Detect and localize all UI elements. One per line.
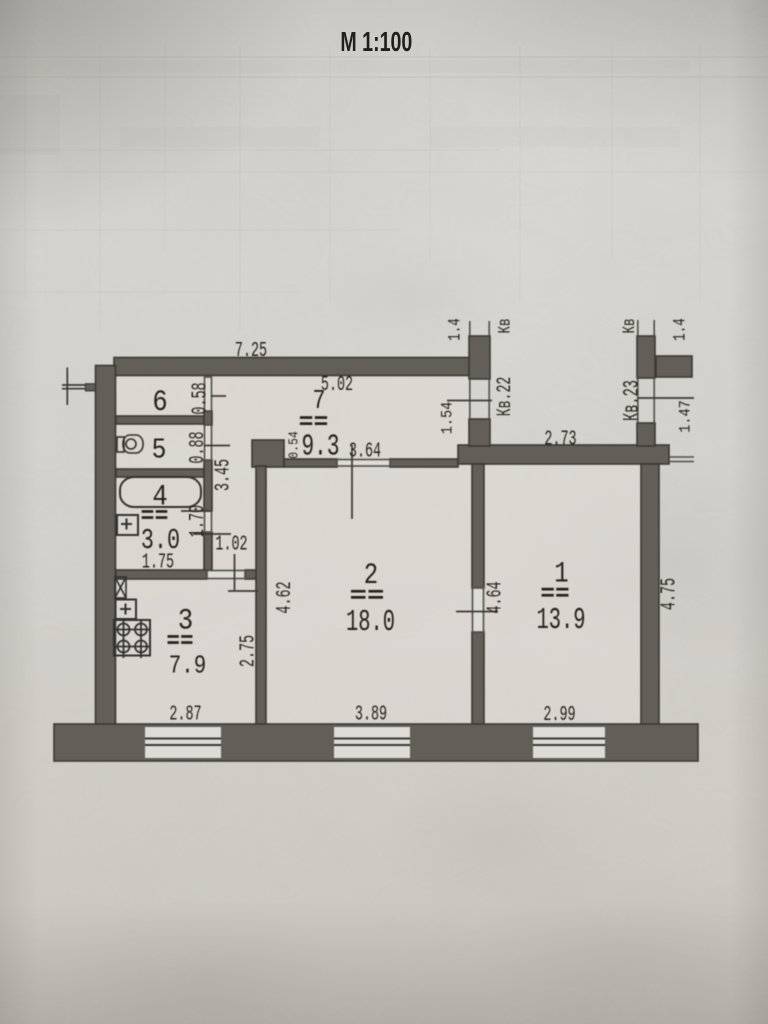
svg-text:6: 6 <box>152 386 167 419</box>
svg-text:5: 5 <box>152 435 167 467</box>
svg-text:Кв.22: Кв.22 <box>495 377 517 417</box>
svg-text:0.54: 0.54 <box>287 431 302 459</box>
svg-text:1.75: 1.75 <box>142 551 174 575</box>
svg-text:7.25: 7.25 <box>235 339 267 363</box>
svg-text:2: 2 <box>364 559 378 593</box>
svg-text:1.70: 1.70 <box>186 505 210 537</box>
svg-text:2.73: 2.73 <box>544 428 576 452</box>
svg-text:4.75: 4.75 <box>658 578 682 610</box>
svg-text:4.64: 4.64 <box>484 581 508 613</box>
svg-text:Кв.23: Кв.23 <box>621 380 645 421</box>
svg-text:3.45: 3.45 <box>212 459 236 491</box>
svg-text:1.4: 1.4 <box>444 318 465 341</box>
svg-text:Кв: Кв <box>619 318 640 333</box>
svg-text:4: 4 <box>152 481 167 514</box>
svg-text:9.3: 9.3 <box>302 429 340 464</box>
svg-text:0.58: 0.58 <box>189 382 213 414</box>
svg-text:7: 7 <box>313 387 326 417</box>
svg-text:2.87: 2.87 <box>169 703 201 727</box>
svg-text:3.0: 3.0 <box>141 524 180 557</box>
svg-text:1.4: 1.4 <box>669 318 690 341</box>
svg-text:13.9: 13.9 <box>536 602 585 637</box>
svg-text:7.9: 7.9 <box>169 652 206 682</box>
svg-text:1.54: 1.54 <box>440 402 457 435</box>
svg-text:Кв: Кв <box>494 318 515 333</box>
svg-text:2.75: 2.75 <box>237 635 261 667</box>
svg-text:1: 1 <box>554 557 568 591</box>
svg-text:5.02: 5.02 <box>321 373 353 397</box>
svg-text:3: 3 <box>178 605 193 638</box>
svg-text:1.47: 1.47 <box>678 400 695 433</box>
svg-text:18.0: 18.0 <box>346 604 395 639</box>
svg-text:3.89: 3.89 <box>355 703 387 727</box>
svg-text:1.02: 1.02 <box>215 533 247 557</box>
svg-text:0.88: 0.88 <box>186 431 210 463</box>
svg-text:2.99: 2.99 <box>543 703 575 727</box>
svg-text:4.62: 4.62 <box>273 581 297 613</box>
svg-text:3.64: 3.64 <box>349 440 381 464</box>
